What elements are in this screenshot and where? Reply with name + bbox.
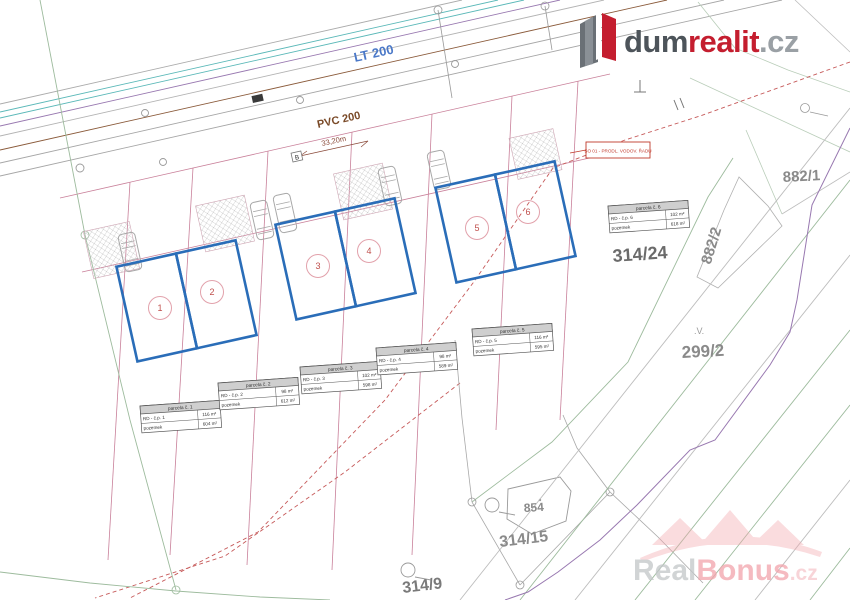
parcel-label-314-24: 314/24 — [612, 242, 668, 266]
survey-mark-icon — [634, 80, 646, 92]
unit-number-text: 5 — [474, 223, 479, 233]
table-row-area: 589 m² — [439, 363, 454, 369]
boundary-lines — [0, 0, 782, 600]
logo-part3: .cz — [759, 24, 799, 59]
table-row-area: 116 m² — [534, 334, 549, 340]
unit-number-2: 2 — [201, 281, 224, 304]
table-row-area: 102 m² — [362, 372, 377, 378]
table-row-area: 618 m² — [671, 221, 686, 227]
paved-hatch — [334, 163, 393, 220]
watermark-realbonus: RealBonus.cz — [633, 510, 822, 587]
paved-hatch — [83, 221, 139, 278]
logo-part1: dum — [624, 24, 688, 59]
parcel-label-299-2: 299/2 — [681, 341, 724, 362]
house-pair-3 — [435, 161, 575, 282]
table-row-area: 604 m² — [203, 421, 218, 427]
parcel-info-table: parcela č. 2RD - č.p. 298 m²pozemek612 m… — [218, 377, 300, 410]
label-sewer-main: PVC 200 — [316, 110, 362, 131]
paved-hatch — [509, 129, 562, 180]
parcel-info-table: parcela č. 3RD - č.p. 3102 m²pozemek598 … — [300, 361, 382, 394]
double-tick-icon — [674, 98, 684, 110]
table-row-area: 98 m² — [439, 353, 452, 359]
parcel-label-882-2: 882/2 — [698, 225, 725, 266]
unit-number-text: 6 — [525, 207, 530, 217]
unit-number-text: 2 — [209, 287, 214, 297]
red-note-text: SO 01 - PRODL. VODOV. ŘADU — [584, 147, 651, 154]
watermark-part2: Bonus — [696, 554, 789, 587]
site-plan-page: 123456 parcela č. 1RD - č.p. 1116 m²poze… — [0, 0, 850, 600]
well-icon — [485, 498, 515, 515]
unit-number-5: 5 — [466, 217, 489, 240]
label-dimension: 33,20m — [320, 134, 346, 148]
parcel-info-table: parcela č. 6RD - č.p. 6102 m²pozemek618 … — [608, 200, 690, 233]
parcel-info-table: parcela č. 1RD - č.p. 1116 m²pozemek604 … — [140, 400, 222, 433]
svg-text:dumrealit.cz: dumrealit.cz — [624, 24, 799, 59]
watermark-part3: .cz — [790, 562, 818, 585]
point-b-marker: B — [291, 151, 303, 162]
unit-number-text: 4 — [366, 246, 371, 256]
parcel-label-314-9: 314/9 — [401, 575, 443, 597]
table-row-area: 598 m² — [363, 382, 378, 388]
parcel-info-table: parcela č. 5RD - č.p. 5116 m²pozemek595 … — [472, 323, 554, 356]
table-row-area: 612 m² — [281, 398, 296, 404]
svg-text:RealBonus.cz: RealBonus.cz — [633, 554, 818, 587]
table-row-area: 98 m² — [281, 388, 294, 394]
parked-cars — [118, 150, 452, 273]
parcel-label-882-1: 882/1 — [782, 167, 820, 186]
parcel-info-table: parcela č. 4RD - č.p. 498 m²pozemek589 m… — [376, 342, 458, 375]
logo-building-icon — [580, 12, 616, 68]
marker-v: .V. — [694, 326, 704, 336]
table-row-area: 116 m² — [202, 411, 217, 417]
table-row-area: 595 m² — [535, 344, 550, 350]
parcel-label-314-15: 314/15 — [498, 528, 549, 551]
unit-number-text: 3 — [315, 261, 320, 271]
site-plan-map: 123456 parcela č. 1RD - č.p. 1116 m²poze… — [0, 0, 850, 600]
unit-number-text: 1 — [157, 303, 162, 313]
unit-number-1: 1 — [149, 297, 172, 320]
hydrant-icon — [251, 94, 263, 103]
table-row-area: 102 m² — [670, 211, 685, 217]
unit-number-3: 3 — [307, 255, 330, 278]
car-icon — [250, 200, 275, 241]
logo-part2: realit — [688, 24, 759, 59]
unit-number-4: 4 — [358, 240, 381, 263]
parcel-label-854: 854 — [523, 500, 544, 515]
watermark-part1: Real — [633, 554, 696, 587]
red-note: SO 01 - PRODL. VODOV. ŘADU — [570, 142, 652, 158]
